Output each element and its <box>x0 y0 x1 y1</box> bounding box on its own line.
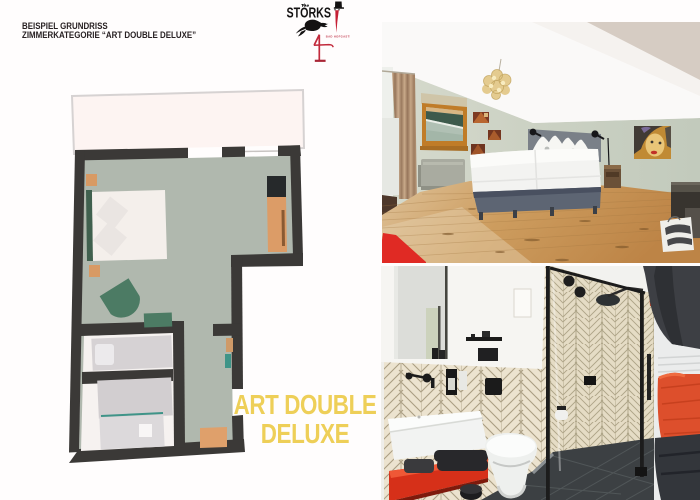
svg-text:STÖRKS: STÖRKS <box>287 5 332 22</box>
svg-text:BAD HOFGASTEIN: BAD HOFGASTEIN <box>326 35 350 39</box>
